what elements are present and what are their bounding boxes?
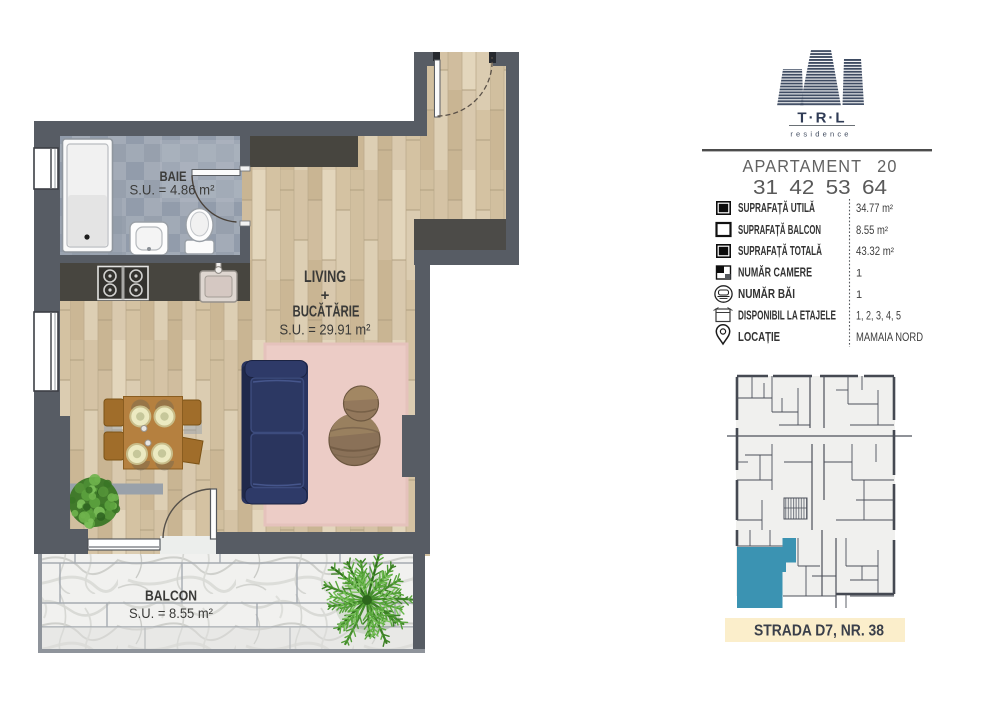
svg-text:1: 1	[856, 268, 862, 280]
svg-text:NUMĂR BĂI: NUMĂR BĂI	[738, 286, 795, 301]
svg-text:LOCAȚIE: LOCAȚIE	[738, 330, 780, 344]
svg-text:LIVING: LIVING	[304, 267, 346, 286]
svg-text:34.77 m²: 34.77 m²	[856, 203, 893, 215]
svg-text:1, 2, 3, 4, 5: 1, 2, 3, 4, 5	[856, 311, 901, 323]
svg-text:T·R·L: T·R·L	[797, 110, 846, 127]
svg-text:+: +	[321, 287, 330, 304]
svg-text:APARTAMENT 20: APARTAMENT 20	[743, 156, 898, 176]
svg-text:BALCON: BALCON	[145, 589, 197, 605]
svg-text:DISPONIBIL LA ETAJELE: DISPONIBIL LA ETAJELE	[738, 309, 836, 323]
svg-text:NUMĂR CAMERE: NUMĂR CAMERE	[738, 265, 812, 280]
svg-text:S.U. = 8.55 m²: S.U. = 8.55 m²	[129, 605, 213, 621]
svg-text:SUPRAFAȚĂ UTILĂ: SUPRAFAȚĂ UTILĂ	[738, 200, 815, 215]
svg-text:S.U. = 4.86 m²: S.U. = 4.86 m²	[130, 182, 215, 198]
svg-text:31 42 53 64: 31 42 53 64	[753, 177, 887, 199]
svg-text:STRADA D7, NR. 38: STRADA D7, NR. 38	[754, 623, 884, 640]
svg-text:43.32 m²: 43.32 m²	[856, 246, 894, 258]
svg-text:BUCĂTĂRIE: BUCĂTĂRIE	[293, 304, 360, 321]
svg-text:SUPRAFAȚĂ TOTALĂ: SUPRAFAȚĂ TOTALĂ	[738, 243, 822, 258]
svg-text:MAMAIA NORD: MAMAIA NORD	[856, 332, 923, 344]
svg-text:1: 1	[856, 289, 862, 301]
svg-text:SUPRAFAȚĂ BALCON: SUPRAFAȚĂ BALCON	[738, 222, 821, 237]
svg-text:residence: residence	[790, 130, 851, 139]
svg-text:8.55 m²: 8.55 m²	[856, 225, 888, 237]
svg-text:S.U. = 29.91 m²: S.U. = 29.91 m²	[280, 322, 371, 339]
